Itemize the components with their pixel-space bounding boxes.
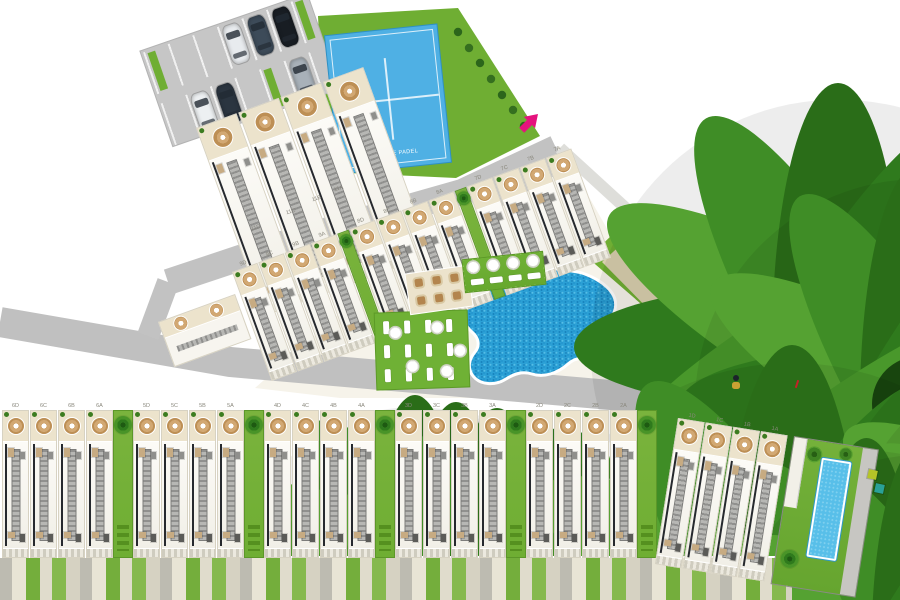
shrub-icon bbox=[313, 243, 319, 249]
party-wall bbox=[192, 444, 194, 546]
roof-terrace bbox=[265, 442, 290, 548]
unit-label: 4B bbox=[319, 403, 348, 410]
green-strip bbox=[637, 410, 657, 558]
roof-terrace bbox=[396, 442, 421, 548]
roof-terrace bbox=[349, 442, 374, 548]
party-wall bbox=[136, 444, 138, 546]
shrub-icon bbox=[556, 412, 561, 417]
parasol-table-icon bbox=[616, 418, 632, 434]
townhouse-unit: 4B bbox=[320, 410, 347, 558]
recycling-bin-icon bbox=[867, 469, 878, 480]
unit-label: 6C bbox=[29, 403, 58, 410]
party-wall bbox=[557, 444, 559, 546]
shrub-icon bbox=[261, 262, 267, 268]
parasol-table-icon bbox=[384, 218, 402, 236]
shrub-icon bbox=[397, 412, 402, 417]
unit-label: 3D bbox=[394, 403, 423, 410]
table-icon bbox=[414, 278, 423, 287]
party-wall bbox=[351, 444, 353, 546]
parasol-icon bbox=[526, 254, 539, 267]
palm-tree-icon bbox=[638, 416, 656, 434]
roof-terrace bbox=[452, 442, 477, 548]
stairs-icon bbox=[723, 468, 744, 558]
sun-lounger-icon bbox=[385, 369, 391, 382]
party-wall bbox=[454, 444, 456, 546]
parasol-table-icon bbox=[326, 418, 342, 434]
party-wall bbox=[5, 444, 7, 546]
roof-terrace bbox=[527, 442, 552, 548]
palm-tree-icon bbox=[245, 416, 263, 434]
roof-terrace bbox=[134, 442, 159, 548]
parasol-table-icon bbox=[319, 242, 337, 260]
front-patio bbox=[321, 411, 346, 442]
parasol-table-icon bbox=[266, 261, 284, 279]
townhouse-unit: 6A bbox=[86, 410, 113, 558]
party-wall bbox=[613, 444, 615, 546]
townhouse-unit: 3C bbox=[423, 410, 450, 558]
recycling-bin-icon bbox=[874, 483, 885, 494]
stairs-icon bbox=[358, 450, 365, 540]
parasol-table-icon bbox=[485, 418, 501, 434]
unit-label: 2B bbox=[581, 403, 610, 410]
entry-steps bbox=[424, 548, 449, 557]
parasol-table-icon bbox=[429, 418, 445, 434]
front-patio bbox=[349, 411, 374, 442]
parasol-table-icon bbox=[139, 418, 155, 434]
car-icon bbox=[221, 22, 251, 66]
entry-steps bbox=[162, 548, 187, 557]
parasol-icon bbox=[389, 327, 401, 339]
shrub-icon bbox=[762, 433, 768, 439]
townhouse-unit: 3D bbox=[395, 410, 422, 558]
townhouse-unit: 3B bbox=[451, 410, 478, 558]
parasol-table-icon bbox=[295, 95, 319, 119]
stairs-icon bbox=[143, 450, 150, 540]
townhouse-unit: 2A bbox=[610, 410, 637, 558]
shrub-icon bbox=[88, 412, 93, 417]
bar-terrace bbox=[406, 266, 473, 314]
front-patio bbox=[293, 411, 318, 442]
entry-steps bbox=[527, 548, 552, 557]
parasol-icon bbox=[454, 344, 466, 356]
stairs-icon bbox=[199, 450, 206, 540]
car-icon bbox=[270, 5, 300, 49]
parasol-table-icon bbox=[8, 418, 24, 434]
parasol-table-icon bbox=[167, 418, 183, 434]
parasol-table-icon bbox=[475, 185, 493, 203]
shrub-icon bbox=[325, 81, 331, 87]
townhouse-unit: 5A bbox=[217, 410, 244, 558]
front-patio bbox=[674, 419, 704, 454]
roof-terrace bbox=[555, 442, 580, 548]
sun-lounger-icon bbox=[426, 344, 432, 357]
unit-group: 2D2C2B2A bbox=[526, 410, 637, 558]
unit-label: 2A bbox=[609, 403, 638, 410]
parasol-icon bbox=[487, 258, 500, 271]
party-wall bbox=[529, 444, 531, 546]
shrub-icon bbox=[60, 412, 65, 417]
entry-steps bbox=[480, 548, 505, 557]
party-wall bbox=[267, 444, 269, 546]
sun-lounger-icon bbox=[404, 320, 410, 333]
parasol-table-icon bbox=[172, 315, 189, 332]
front-patio bbox=[218, 411, 243, 442]
front-patio bbox=[162, 411, 187, 442]
palm-tree-icon bbox=[114, 416, 132, 434]
parasol-table-icon bbox=[528, 166, 546, 184]
entry-steps bbox=[293, 548, 318, 557]
entry-steps bbox=[349, 548, 374, 557]
party-wall bbox=[61, 444, 63, 546]
stairs-icon bbox=[12, 450, 19, 540]
townhouse-unit: 5C bbox=[161, 410, 188, 558]
parasol-table-icon bbox=[252, 110, 276, 134]
sun-lounger-icon bbox=[508, 274, 522, 281]
party-wall bbox=[585, 444, 587, 546]
party-wall bbox=[164, 444, 166, 546]
party-wall bbox=[295, 444, 297, 546]
unit-label: 5C bbox=[160, 403, 189, 410]
parasol-table-icon bbox=[195, 418, 211, 434]
palm-tree-icon bbox=[507, 416, 525, 434]
stairs-icon bbox=[620, 450, 627, 540]
unit-label: 4A bbox=[347, 403, 376, 410]
roof-terrace bbox=[31, 442, 56, 548]
front-patio bbox=[611, 411, 636, 442]
roof-terrace bbox=[59, 442, 84, 548]
stairs-icon bbox=[405, 450, 412, 540]
front-patio bbox=[31, 411, 56, 442]
shrub-icon bbox=[287, 252, 293, 258]
front-patio bbox=[527, 411, 552, 442]
entry-steps bbox=[87, 548, 112, 557]
entry-steps bbox=[396, 548, 421, 557]
party-wall bbox=[89, 444, 91, 546]
shrub-icon bbox=[352, 229, 358, 235]
green-strip bbox=[375, 410, 395, 558]
unit-group: 6D6C6B6A bbox=[2, 410, 113, 558]
front-patio bbox=[59, 411, 84, 442]
front-patio bbox=[757, 432, 787, 467]
stairs-icon bbox=[489, 450, 496, 540]
townhouse-unit: 6B bbox=[58, 410, 85, 558]
front-patio bbox=[134, 411, 159, 442]
green-strip bbox=[506, 410, 526, 558]
shrub-icon bbox=[522, 167, 528, 173]
parasol-table-icon bbox=[680, 427, 698, 445]
parasol-table-icon bbox=[92, 418, 108, 434]
entry-steps bbox=[59, 548, 84, 557]
entry-steps bbox=[583, 548, 608, 557]
townhouse-unit: 5D bbox=[133, 410, 160, 558]
shrub-icon bbox=[548, 157, 554, 163]
front-patio bbox=[583, 411, 608, 442]
roof-terrace bbox=[424, 442, 449, 548]
front-patio bbox=[87, 411, 112, 442]
unit-label: 5B bbox=[188, 403, 217, 410]
party-wall bbox=[33, 444, 35, 546]
townhouse-unit: 2B bbox=[582, 410, 609, 558]
parasol-table-icon bbox=[588, 418, 604, 434]
parasol-table-icon bbox=[501, 176, 519, 194]
sun-lounger-icon bbox=[471, 278, 485, 285]
blocks-2-to-6-row: 6D6C6B6A5D5C5B5A4D4C4B4A3D3C3B3A2D2C2B2A bbox=[2, 410, 657, 558]
parasol-table-icon bbox=[270, 418, 286, 434]
parasol-table-icon bbox=[208, 302, 225, 319]
shrub-icon bbox=[405, 210, 411, 216]
table-icon bbox=[432, 276, 441, 285]
shrub-icon bbox=[266, 412, 271, 417]
shrub-icon bbox=[734, 429, 740, 435]
shrub-icon bbox=[679, 420, 685, 426]
stairs-icon bbox=[330, 450, 337, 540]
entry-steps bbox=[555, 548, 580, 557]
shrub-icon bbox=[378, 219, 384, 225]
parasol-table-icon bbox=[36, 418, 52, 434]
stairs-icon bbox=[564, 450, 571, 540]
unit-group: 4D4C4B4A bbox=[264, 410, 375, 558]
front-patio bbox=[190, 411, 215, 442]
roof-terrace bbox=[190, 442, 215, 548]
entry-steps bbox=[321, 548, 346, 557]
shrub-icon bbox=[294, 412, 299, 417]
party-wall bbox=[426, 444, 428, 546]
front-patio bbox=[424, 411, 449, 442]
roof-terrace bbox=[87, 442, 112, 548]
unit-label: 6B bbox=[57, 403, 86, 410]
shrub-icon bbox=[612, 412, 617, 417]
palm-tree-icon bbox=[376, 416, 394, 434]
parasol-icon bbox=[467, 261, 480, 274]
front-patio bbox=[480, 411, 505, 442]
parasol-table-icon bbox=[532, 418, 548, 434]
unit-label: 2C bbox=[553, 403, 582, 410]
shrub-icon bbox=[4, 412, 9, 417]
roof-terrace bbox=[293, 442, 318, 548]
shrub-icon bbox=[163, 412, 168, 417]
entry-steps bbox=[611, 548, 636, 557]
townhouse-unit: 4A bbox=[348, 410, 375, 558]
parasol-table-icon bbox=[358, 228, 376, 246]
shrub-icon bbox=[32, 412, 37, 417]
parasol-table-icon bbox=[64, 418, 80, 434]
front-patio bbox=[452, 411, 477, 442]
stairs-icon bbox=[171, 450, 178, 540]
shrub-icon bbox=[191, 412, 196, 417]
shrub-icon bbox=[453, 412, 458, 417]
shrub-icon bbox=[235, 271, 241, 277]
sun-lounger-icon bbox=[405, 344, 411, 357]
parasol-icon bbox=[406, 360, 418, 372]
shrub-icon bbox=[584, 412, 589, 417]
sun-lounger-icon bbox=[384, 345, 390, 358]
front-patio bbox=[265, 411, 290, 442]
parasol-table-icon bbox=[223, 418, 239, 434]
parasol-table-icon bbox=[707, 431, 725, 449]
parasol-table-icon bbox=[210, 125, 234, 149]
unit-label: 5D bbox=[132, 403, 161, 410]
unit-label: 5A bbox=[216, 403, 245, 410]
unit-label: 3B bbox=[450, 403, 479, 410]
sunbathing-lawn bbox=[375, 310, 470, 389]
table-icon bbox=[452, 291, 461, 300]
stairs-icon bbox=[592, 450, 599, 540]
entry-steps bbox=[134, 548, 159, 557]
roof-terrace bbox=[321, 442, 346, 548]
stairs-icon bbox=[227, 450, 234, 540]
table-icon bbox=[450, 273, 459, 282]
front-patio bbox=[702, 424, 732, 459]
shrub-icon bbox=[135, 412, 140, 417]
entry-steps bbox=[190, 548, 215, 557]
roof-terrace bbox=[611, 442, 636, 548]
stairs-icon bbox=[274, 450, 281, 540]
roof-terrace bbox=[162, 442, 187, 548]
sun-lounger-icon bbox=[427, 368, 433, 381]
townhouse-unit: 6C bbox=[30, 410, 57, 558]
lap-pool bbox=[806, 458, 851, 561]
parasol-table-icon bbox=[735, 436, 753, 454]
parasol-table-icon bbox=[337, 79, 361, 103]
roof-terrace bbox=[218, 442, 243, 548]
townhouse-unit: 2C bbox=[554, 410, 581, 558]
unit-label: 6D bbox=[1, 403, 30, 410]
party-wall bbox=[220, 444, 222, 546]
shrub-icon bbox=[469, 186, 475, 192]
shrub-icon bbox=[481, 412, 486, 417]
shrub-icon bbox=[496, 176, 502, 182]
front-patio bbox=[396, 411, 421, 442]
palm-tree-icon bbox=[779, 549, 800, 570]
shrub-icon bbox=[241, 112, 247, 118]
unit-label: 3C bbox=[422, 403, 451, 410]
unit-label: 6A bbox=[85, 403, 114, 410]
parasol-table-icon bbox=[410, 209, 428, 227]
person-icon bbox=[729, 374, 743, 390]
parasol-table-icon bbox=[457, 418, 473, 434]
front-patio bbox=[729, 428, 759, 463]
entry-steps bbox=[265, 548, 290, 557]
stairs-icon bbox=[668, 459, 689, 549]
townhouse-unit: 4C bbox=[292, 410, 319, 558]
unit-label: 3A bbox=[478, 403, 507, 410]
front-patio bbox=[3, 411, 28, 442]
parasol-table-icon bbox=[354, 418, 370, 434]
site-plan: PISTA DE PADEL 11D11C11B11A 9D9C9B9A8D8C… bbox=[0, 0, 900, 600]
parasol-table-icon bbox=[240, 271, 258, 289]
stairs-icon bbox=[433, 450, 440, 540]
stairs-icon bbox=[461, 450, 468, 540]
shrub-icon bbox=[707, 425, 713, 431]
parasol-table-icon bbox=[293, 251, 311, 269]
stairs-icon bbox=[68, 450, 75, 540]
sun-lounger-icon bbox=[527, 272, 541, 279]
parasol-table-icon bbox=[554, 156, 572, 174]
shrub-icon bbox=[431, 200, 437, 206]
roof-terrace bbox=[3, 442, 28, 548]
unit-group: 3D3C3B3A bbox=[395, 410, 506, 558]
townhouse-unit: 5B bbox=[189, 410, 216, 558]
stairs-icon bbox=[751, 472, 772, 562]
party-wall bbox=[482, 444, 484, 546]
green-strip bbox=[113, 410, 133, 558]
parasol-icon bbox=[507, 256, 520, 269]
townhouse-unit: 2D bbox=[526, 410, 553, 558]
parasol-icon bbox=[431, 321, 443, 333]
parasol-table-icon bbox=[560, 418, 576, 434]
shrub-icon bbox=[322, 412, 327, 417]
sun-lounger-icon bbox=[446, 319, 452, 332]
shrub-icon bbox=[219, 412, 224, 417]
stairs-icon bbox=[695, 463, 716, 553]
stairs-icon bbox=[536, 450, 543, 540]
sun-lounger-icon bbox=[490, 276, 504, 283]
parasol-table-icon bbox=[763, 440, 781, 458]
stairs-icon bbox=[302, 450, 309, 540]
green-strip bbox=[244, 410, 264, 558]
sun-lounger-icon bbox=[447, 343, 453, 356]
shrub-icon bbox=[425, 412, 430, 417]
parasol-table-icon bbox=[437, 199, 455, 217]
roof-terrace bbox=[480, 442, 505, 548]
townhouse-unit: 6D bbox=[2, 410, 29, 558]
entry-steps bbox=[31, 548, 56, 557]
entry-steps bbox=[3, 548, 28, 557]
block-1-row: 1D1C1B1A bbox=[655, 418, 788, 582]
unit-label: 2D bbox=[525, 403, 554, 410]
shrub-icon bbox=[283, 97, 289, 103]
party-wall bbox=[323, 444, 325, 546]
shrub-icon bbox=[199, 127, 205, 133]
parasol-table-icon bbox=[298, 418, 314, 434]
table-icon bbox=[435, 294, 444, 303]
table-icon bbox=[417, 296, 426, 305]
unit-label: 4D bbox=[263, 403, 292, 410]
entry-steps bbox=[452, 548, 477, 557]
roof-terrace bbox=[583, 442, 608, 548]
entry-steps bbox=[218, 548, 243, 557]
unit-group: 5D5C5B5A bbox=[133, 410, 244, 558]
front-patio bbox=[555, 411, 580, 442]
shrub-icon bbox=[528, 412, 533, 417]
townhouse-unit: 4D bbox=[264, 410, 291, 558]
stairs-icon bbox=[40, 450, 47, 540]
party-wall bbox=[398, 444, 400, 546]
shrub-icon bbox=[350, 412, 355, 417]
stairs-icon bbox=[96, 450, 103, 540]
parasol-table-icon bbox=[401, 418, 417, 434]
unit-label: 4C bbox=[291, 403, 320, 410]
car-icon bbox=[246, 13, 276, 57]
townhouse-unit: 3A bbox=[479, 410, 506, 558]
